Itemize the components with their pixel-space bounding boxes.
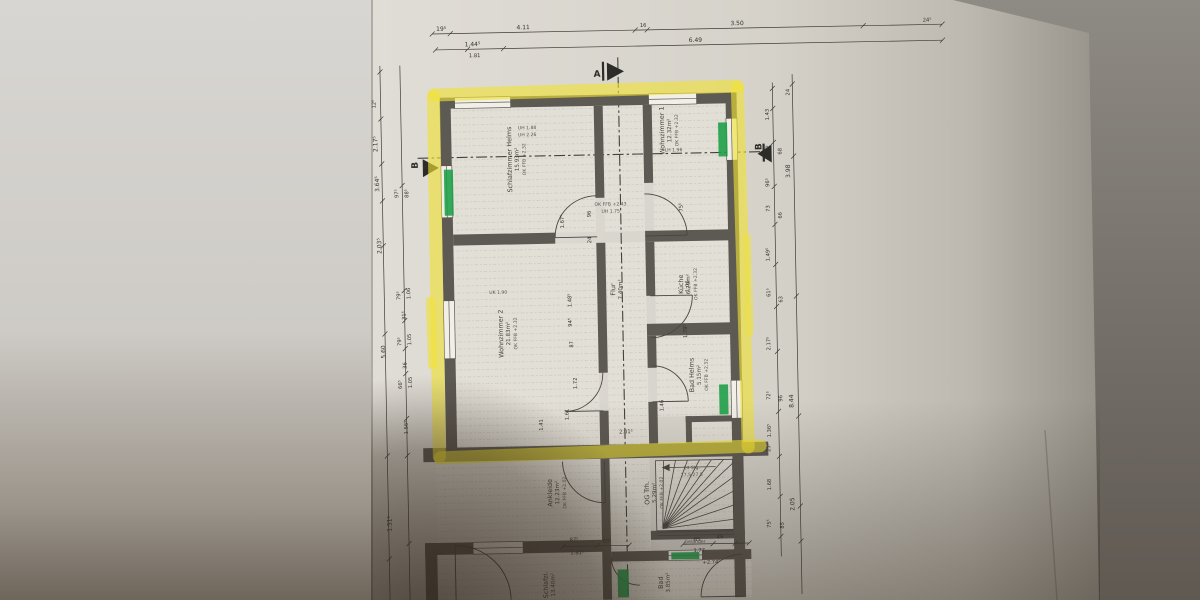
dim-label: 75⁵ — [679, 203, 685, 212]
dim-label: 72⁵ — [766, 391, 772, 400]
dim-label: 61⁵ — [766, 288, 772, 297]
dim-label: 1.81 — [469, 53, 481, 59]
dim-label: 88⁵ — [404, 189, 410, 198]
svg-text:UH 1.75: UH 1.75 — [601, 208, 620, 214]
dim-label: 1.49⁵ — [765, 248, 771, 262]
svg-text:Küche: Küche — [677, 274, 685, 294]
svg-text:OK FFB +2.32: OK FFB +2.32 — [674, 114, 681, 146]
dim-label: 24 — [785, 88, 791, 95]
svg-text:Wohnzimmer 1: Wohnzimmer 1 — [658, 106, 667, 154]
background-left — [0, 0, 372, 600]
dim-label: 3.98 — [785, 164, 792, 178]
floor-plan-photo: 19⁵ 4.11 16 3.50 24⁵ 1.44⁵ 1.81 6.49 12⁵… — [0, 0, 1200, 600]
svg-text:OK FFB +2.32: OK FFB +2.32 — [521, 143, 528, 175]
dim-label: 97⁵ — [394, 189, 400, 198]
svg-text:A: A — [593, 70, 600, 80]
dim-label: 3.50 — [730, 20, 744, 27]
svg-text:15.93m²: 15.93m² — [513, 147, 520, 171]
svg-text:OK FFB +2.43: OK FFB +2.43 — [594, 201, 626, 208]
dim-label: 16 — [640, 23, 647, 29]
dim-label: 94⁵ — [568, 318, 574, 327]
svg-text:OK FFB +2.32: OK FFB +2.32 — [693, 268, 700, 300]
dim-label: 4.11 — [516, 24, 530, 31]
svg-text:Flur: Flur — [609, 283, 617, 296]
dim-label: 63 — [778, 296, 784, 303]
dim-label: 79⁵ — [396, 291, 402, 300]
dim-label: 31⁵ — [402, 311, 408, 320]
dim-label: 24⁵ — [923, 17, 932, 23]
svg-text:Schlafzimmer Helms: Schlafzimmer Helms — [505, 126, 514, 193]
dim-label: 1.48⁵ — [567, 294, 573, 308]
dim-label: 96 — [587, 211, 593, 218]
green-mark — [444, 170, 454, 216]
dim-label: 68 — [778, 148, 784, 155]
dim-label: 24 — [587, 236, 593, 243]
photo-shadow-corner — [371, 330, 761, 600]
dim-label: 1.43 — [765, 109, 771, 121]
dim-label: 19⁵ — [436, 26, 447, 33]
dim-label: 2.17⁵ — [372, 136, 379, 152]
dim-label: 66 — [778, 212, 784, 219]
svg-text:UK 1.90: UK 1.90 — [489, 290, 507, 296]
dim-label: 1.06 — [406, 288, 412, 300]
plan-canvas: 19⁵ 4.11 16 3.50 24⁵ 1.44⁵ 1.81 6.49 12⁵… — [0, 0, 1200, 600]
svg-text:LH 1.96: LH 1.96 — [665, 147, 683, 153]
dim-label: 2.17⁵ — [766, 337, 772, 351]
dim-label: 6.49 — [689, 37, 703, 44]
dim-label: 96⁵ — [765, 178, 771, 187]
green-mark — [718, 122, 728, 156]
svg-text:7.40m²: 7.40m² — [617, 279, 624, 299]
dim-label: 2.03⁵ — [376, 237, 383, 253]
dim-label: 73 — [766, 205, 772, 212]
svg-text:UH 1.88: UH 1.88 — [518, 125, 537, 131]
svg-text:UH 2.26: UH 2.26 — [518, 132, 537, 138]
dim-label: 1.67⁵ — [560, 215, 566, 229]
dim-label: 12⁵ — [372, 100, 378, 109]
svg-text:B: B — [411, 162, 421, 169]
dim-label: 1.44⁵ — [465, 41, 481, 48]
dim-label: 3.64⁵ — [374, 176, 381, 192]
svg-text:6.29m²: 6.29m² — [685, 274, 692, 294]
svg-text:12.32m²: 12.32m² — [666, 119, 673, 143]
